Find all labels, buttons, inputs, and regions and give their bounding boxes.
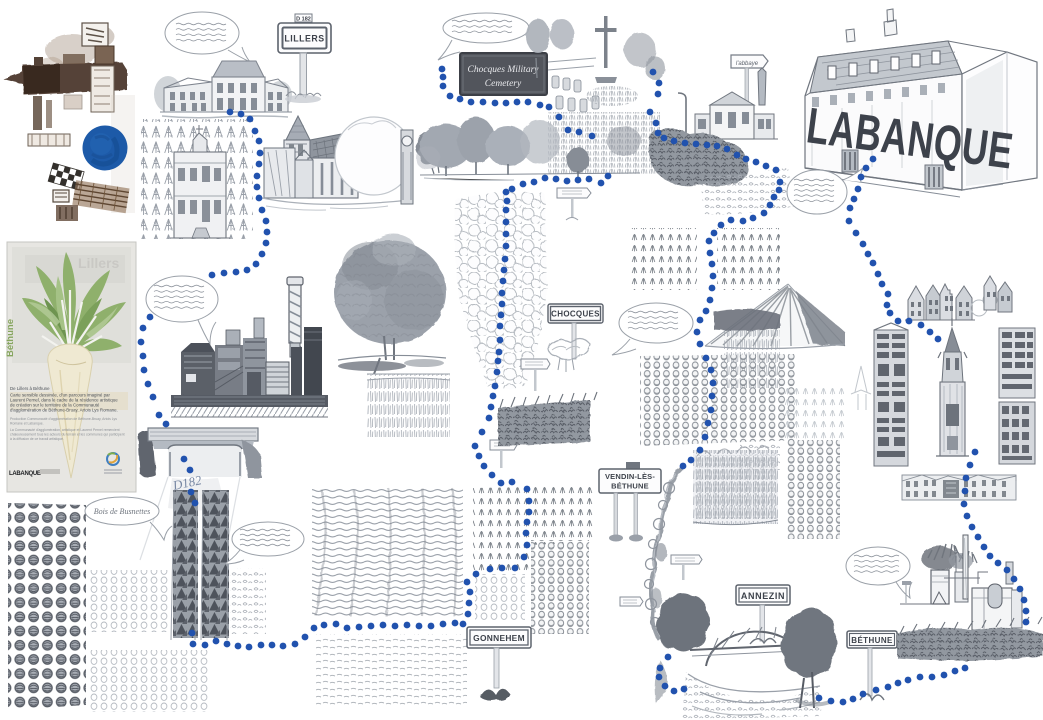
svg-text:d'agglomération de Béthune-Bru: d'agglomération de Béthune-Bruay, Artois… [10, 408, 118, 413]
svg-text:Bois de Busnettes: Bois de Busnettes [94, 507, 150, 516]
svg-text:LABANQUE: LABANQUE [9, 471, 41, 477]
svg-text:ANNEZIN: ANNEZIN [741, 591, 785, 601]
svg-text:D 182: D 182 [296, 17, 311, 23]
svg-text:Béthune: Béthune [5, 319, 16, 357]
svg-text:BÉTHUNE: BÉTHUNE [851, 636, 893, 645]
svg-text:CHOCQUES: CHOCQUES [551, 310, 600, 319]
svg-text:VENDIN-LÈS-: VENDIN-LÈS- [605, 472, 655, 481]
svg-text:LILLERS: LILLERS [284, 34, 324, 44]
svg-text:Romane et Labanque.: Romane et Labanque. [10, 422, 44, 426]
svg-text:La Communauté d'agglomération,: La Communauté d'agglomération, artistiqu… [10, 428, 120, 432]
svg-text:De Lillers à Béthune: De Lillers à Béthune [10, 386, 50, 391]
svg-text:GONNEHEM: GONNEHEM [473, 633, 525, 643]
svg-text:Lillers: Lillers [78, 255, 119, 271]
svg-text:BÉTHUNE: BÉTHUNE [611, 482, 649, 491]
svg-text:Production Communauté d'agglom: Production Communauté d'agglomération de… [10, 417, 117, 421]
svg-text:Cemetery: Cemetery [485, 79, 522, 89]
svg-text:chaleureusement tous les acteu: chaleureusement tous les acteurs du terr… [10, 433, 125, 437]
svg-text:l'abbaye: l'abbaye [736, 61, 759, 67]
svg-text:Chocques Military: Chocques Military [468, 65, 540, 75]
svg-text:à la diffusion de ce travail a: à la diffusion de ce travail artistique. [10, 437, 64, 441]
